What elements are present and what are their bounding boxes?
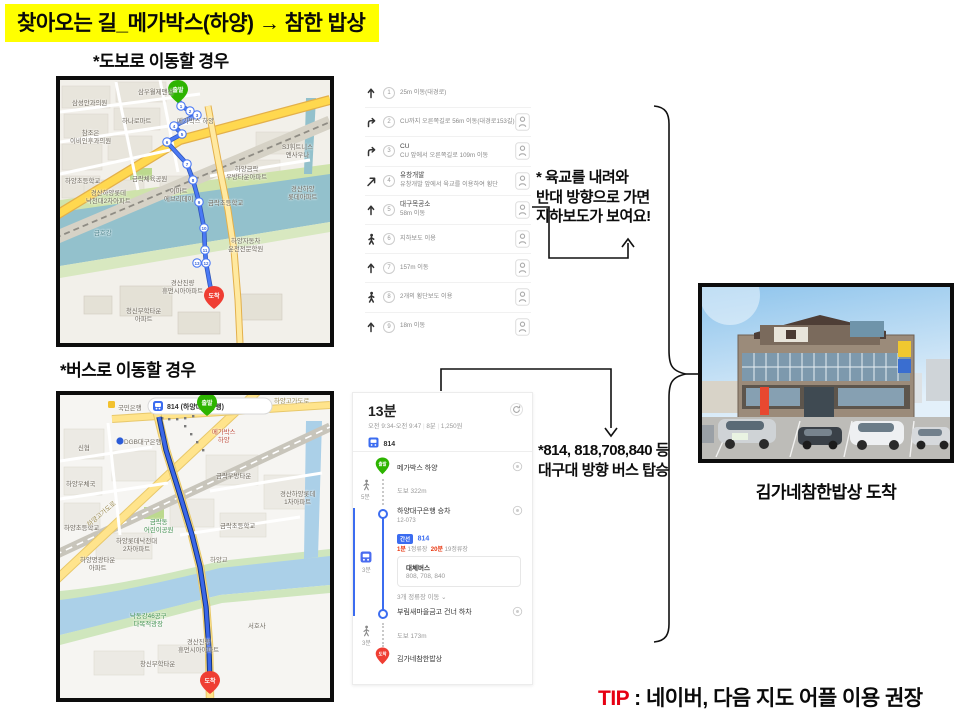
walk-icon (360, 625, 372, 637)
slide-page: 찾아오는 길_메가박스(하양) → 참한 밥상 *도보로 이동할 경우 *버스로… (0, 0, 960, 720)
walking-map: 12345678910111312 출발 도착 삼성안과의원삼우월제맨션하나로마… (56, 76, 334, 347)
walker-icon (365, 233, 378, 245)
map-label: 청신무학타운아파트 (126, 308, 161, 323)
walk-step-row: 4유창개발유창개발 앞에서 육교를 이용하여 횡단 (365, 166, 531, 195)
photo-caption: 김가네참한밥상 도착 (698, 478, 954, 503)
end-place-name: 김가네참한밥상 (397, 654, 442, 664)
map-label: 경산진량휴먼시아아파트 (178, 639, 219, 654)
step-number: 2 (383, 116, 395, 128)
step-text: 대구목공소58m 이동 (400, 201, 515, 218)
step-number: 4 (383, 175, 395, 187)
step-text: 지하보도 이용 (400, 235, 515, 243)
board-stop-id: 12-073 (397, 518, 416, 524)
svg-text:4: 4 (173, 124, 176, 129)
bus-number-note: *814, 818,708,840 등대구대 방향 버스 탑승 (538, 441, 669, 480)
map-label: 금락초등학교 (220, 523, 255, 531)
board-stop-dot (378, 509, 388, 519)
map-label: 하양롯데낙천대2차아파트 (116, 538, 157, 553)
restaurant-photo-graphic (702, 287, 950, 459)
bus-times-row: 1분 1정류장 20분 19정류장 (397, 544, 468, 553)
walk-icon (360, 479, 372, 491)
walk-section-label: *도보로 이동할 경우 (93, 47, 229, 72)
svg-text:5: 5 (181, 132, 184, 137)
map-label: 금락체육공원 (132, 176, 167, 184)
map-label: 이마트에브리데이 (164, 188, 193, 203)
alternate-bus-title: 대체버스 (406, 562, 430, 572)
walk-step-row: 125m 이동(대경로) (365, 79, 531, 107)
walk-step-row: 2CU까지 오른쪽길로 56m 이동(대경로153길) (365, 107, 531, 136)
tip-label: TIP (598, 687, 629, 710)
start-stop-name: 메가박스 하양 (397, 463, 438, 473)
map-label: 참조은이비인후과의원 (70, 130, 111, 145)
map-label: 경산하양롯데낙천대2차아파트 (86, 190, 131, 205)
refresh-icon[interactable] (510, 403, 523, 416)
svg-text:출발: 출발 (172, 86, 184, 94)
walk-step-row: 918m 이동 (365, 312, 531, 341)
step-text: 2개의 횡단보도 이용 (400, 293, 515, 301)
map-label: 하양자동차운전전문학원 (228, 238, 263, 253)
walk-step-row: 6지하보도 이용 (365, 224, 531, 253)
svg-text:1: 1 (180, 104, 183, 109)
step-text: 25m 이동(대경로) (400, 89, 531, 97)
map-label: 하양고가도로 (274, 398, 309, 406)
map-label: 창신무학타운 (140, 661, 175, 669)
step-number: 6 (383, 233, 395, 245)
alight-stop-dot (378, 609, 388, 619)
walk-directions-panel: 125m 이동(대경로)2CU까지 오른쪽길로 56m 이동(대경로153길)3… (365, 79, 531, 341)
step-number: 7 (383, 262, 395, 274)
step-title: CU (400, 143, 515, 152)
bus-mode-icon (360, 551, 372, 563)
walk-distance: 도보 173m (397, 631, 427, 640)
bus-segment-line (382, 515, 384, 613)
svg-text:도착: 도착 (208, 292, 220, 300)
walk-duration: 3분 (362, 638, 371, 647)
map-label: 낙동강46공구다목적광장 (130, 613, 167, 628)
map-label: 신협 (78, 445, 90, 453)
stops-accordion[interactable]: 3개 정류장 이동 ⌄ (397, 592, 447, 601)
step-text: CUCU 앞에서 오른쪽길로 109m 이동 (400, 143, 515, 160)
walker-icon (365, 291, 378, 303)
alight-stop-name: 부림새마을금고 건너 하차 (397, 607, 472, 617)
roadview-button[interactable] (515, 142, 530, 160)
arrow-up-icon (365, 262, 378, 274)
target-icon[interactable] (512, 606, 523, 617)
step-text: 18m 이동 (400, 322, 515, 330)
overpass-note: * 육교를 내려와반대 방향으로 가면지하보도가 보여요! (536, 168, 651, 227)
map-label: SJ휘트니스엔사우나 (282, 144, 313, 159)
map-label: 국민은행 (118, 405, 142, 413)
end-marker: 도착 (375, 647, 390, 665)
walk-duration: 5분 (361, 492, 370, 501)
step-text: 157m 이동 (400, 264, 515, 272)
svg-text:2: 2 (189, 109, 192, 114)
map-label: 하나로마트 (122, 118, 151, 126)
walk-step-row: 3CUCU 앞에서 오른쪽길로 109m 이동 (365, 136, 531, 165)
step-title: 대구목공소 (400, 201, 515, 210)
step-number: 8 (383, 291, 395, 303)
alternate-bus-box: 대체버스 808, 708, 840 (397, 556, 521, 587)
arrow-turn-right-icon (365, 116, 378, 128)
svg-text:7: 7 (186, 162, 189, 167)
svg-text:출발: 출발 (201, 399, 213, 407)
bus-segment-bar (353, 508, 355, 616)
bus-map: 814 (하양대구은행) 출발 도착 신협하양우체국하양초등학교국민은행DGB대… (56, 391, 334, 702)
bus-chip: 814 (368, 433, 395, 451)
map-label: 하양교 (210, 557, 228, 565)
bus-route-panel: 13분 오전 9:34-오전 9:47 | 8분 | 1,250원 814 출발 (352, 392, 533, 685)
map-label: 하양우체국 (66, 481, 95, 489)
svg-text:도착: 도착 (204, 677, 216, 685)
walk-distance: 도보 322m (397, 486, 427, 495)
target-icon[interactable] (512, 505, 523, 516)
arrow-up-icon (365, 87, 378, 99)
map-label: 금락우방타운 (216, 473, 251, 481)
step-text: 유창개발유창개발 앞에서 육교를 이용하여 횡단 (400, 172, 515, 189)
svg-text:12: 12 (203, 261, 209, 266)
roadview-button[interactable] (515, 113, 530, 131)
svg-text:8: 8 (192, 178, 195, 183)
walk-step-row: 5대구목공소58m 이동 (365, 195, 531, 224)
route-duration: 13분 (368, 401, 396, 421)
arrow-diagonal-icon (365, 175, 378, 187)
route-summary: 오전 9:34-오전 9:47 | 8분 | 1,250원 (368, 421, 462, 430)
map-label: DGB대구은행 (124, 439, 161, 447)
board-stop-name: 하양대구은행 승차 (397, 506, 450, 516)
svg-text:출발: 출발 (378, 461, 386, 468)
walk-segment-line (382, 623, 384, 647)
map-label: 경산하양롯데1차아파트 (280, 491, 315, 506)
svg-text:11: 11 (203, 248, 208, 253)
svg-text:13: 13 (194, 261, 200, 266)
map-label: 삼우월제맨션 (138, 89, 173, 97)
page-title: 찾아오는 길_메가박스(하양) → 참한 밥상 (5, 4, 379, 42)
walk-step-row: 7157m 이동 (365, 253, 531, 282)
map-label: 경산하양롯데아파트 (288, 186, 317, 201)
roadview-button[interactable] (515, 259, 530, 277)
target-icon[interactable] (512, 461, 523, 472)
tip-line: TIP : 네이버, 다음 지도 어플 이용 권장 (598, 682, 923, 712)
svg-text:10: 10 (201, 226, 207, 231)
tip-text: : 네이버, 다음 지도 어플 이용 권장 (629, 687, 923, 710)
step-number: 3 (383, 145, 395, 157)
bus-icon (368, 437, 379, 448)
roadview-button[interactable] (515, 318, 530, 336)
map-label: 하양초등학교 (65, 178, 100, 186)
restaurant-photo (698, 283, 954, 463)
map-label: 하양명광타운아파트 (80, 557, 115, 572)
map-label: 메가박스 하양 (177, 118, 214, 126)
start-marker: 출발 (375, 457, 390, 475)
map-label: 삼성안과의원 (72, 100, 107, 108)
bus-duration: 3분 (362, 565, 371, 574)
roadview-button[interactable] (515, 172, 530, 190)
map-label: 금락동어린이공원 (144, 519, 173, 534)
map-label: 경산진량휴먼시아아파트 (162, 280, 203, 295)
step-number: 9 (383, 321, 395, 333)
arrow-up-icon (365, 204, 378, 216)
arrow-up-icon (365, 321, 378, 333)
alternate-bus-list: 808, 708, 840 (406, 573, 445, 580)
arrow-turn-right-icon (365, 145, 378, 157)
map-label: 금락초등학교 (208, 200, 243, 208)
step-number: 1 (383, 87, 395, 99)
map-label: 금호강 (94, 230, 112, 238)
roadview-button[interactable] (515, 201, 530, 219)
roadview-button[interactable] (515, 230, 530, 248)
step-title: 유창개발 (400, 172, 515, 181)
map-label: 메가박스하양 (212, 429, 236, 444)
svg-text:6: 6 (166, 140, 169, 145)
walk-step-row: 82개의 횡단보도 이용 (365, 282, 531, 311)
step-number: 5 (383, 204, 395, 216)
map-label: 하양금락우방타운아파트 (226, 166, 267, 181)
svg-text:9: 9 (198, 200, 201, 205)
map-label: 서호사 (248, 623, 266, 631)
walk-segment-line (382, 479, 384, 505)
roadview-button[interactable] (515, 288, 530, 306)
svg-text:도착: 도착 (378, 651, 386, 658)
step-text: CU까지 오른쪽길로 56m 이동(대경로153길) (400, 118, 515, 126)
divider (353, 451, 532, 452)
bus-section-label: *버스로 이동할 경우 (60, 356, 196, 381)
